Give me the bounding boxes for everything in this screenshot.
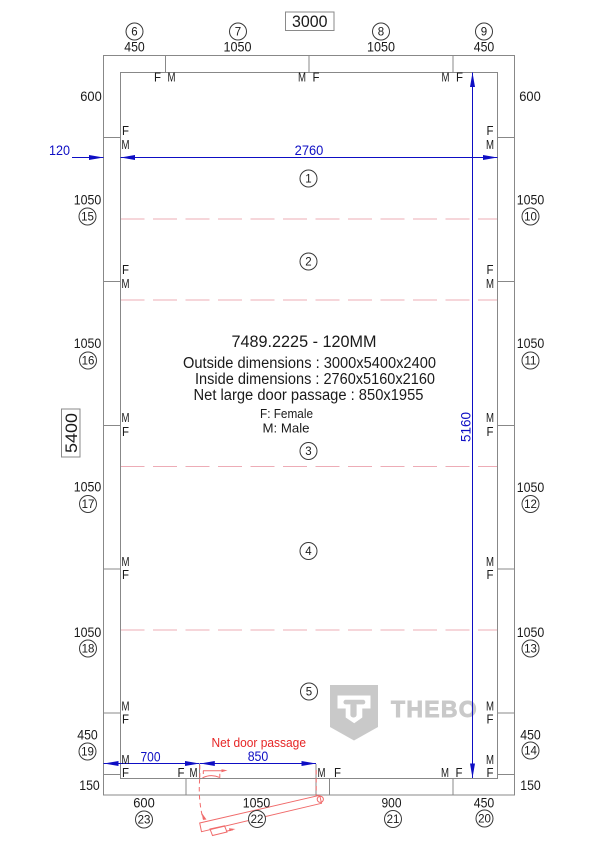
svg-text:1: 1 xyxy=(305,174,311,186)
svg-text:M: M xyxy=(122,138,130,152)
svg-text:22: 22 xyxy=(251,814,264,826)
svg-text:5: 5 xyxy=(306,687,312,699)
svg-text:450: 450 xyxy=(124,39,145,55)
svg-text:450: 450 xyxy=(474,795,495,811)
svg-text:F: F xyxy=(122,425,129,439)
svg-text:Outside dimensions : 3000x5400: Outside dimensions : 3000x5400x2400 xyxy=(183,355,436,372)
svg-text:M: M xyxy=(486,411,494,425)
svg-text:900: 900 xyxy=(382,795,402,811)
svg-text:F: F xyxy=(487,124,494,138)
svg-text:M: Male: M: Male xyxy=(263,421,310,436)
svg-text:5400: 5400 xyxy=(63,413,81,453)
svg-text:M: M xyxy=(486,753,494,767)
svg-text:F: F xyxy=(487,425,494,439)
svg-text:M: M xyxy=(442,71,450,85)
svg-text:Inside dimensions : 2760x5160x: Inside dimensions : 2760x5160x2160 xyxy=(195,371,435,388)
svg-text:10: 10 xyxy=(524,212,537,224)
svg-text:11: 11 xyxy=(525,356,537,368)
svg-text:21: 21 xyxy=(387,814,400,826)
svg-text:700: 700 xyxy=(141,749,161,765)
svg-text:600: 600 xyxy=(133,795,155,811)
svg-text:3000: 3000 xyxy=(292,13,328,31)
svg-text:F: F xyxy=(487,766,494,780)
svg-text:1050: 1050 xyxy=(243,795,271,811)
svg-text:M: M xyxy=(122,411,130,425)
svg-text:M: M xyxy=(486,277,494,291)
svg-text:M: M xyxy=(318,766,326,780)
svg-text:F: F xyxy=(154,71,161,85)
svg-text:450: 450 xyxy=(474,39,495,55)
svg-text:2760: 2760 xyxy=(295,142,324,158)
svg-text:F: F xyxy=(122,712,129,726)
svg-text:600: 600 xyxy=(519,88,541,104)
svg-text:1050: 1050 xyxy=(74,479,102,495)
svg-text:450: 450 xyxy=(520,727,541,743)
svg-text:1050: 1050 xyxy=(367,39,395,55)
svg-text:M: M xyxy=(298,71,306,85)
svg-text:1050: 1050 xyxy=(517,192,545,208)
svg-text:M: M xyxy=(122,753,130,767)
svg-text:M: M xyxy=(190,766,198,780)
svg-text:14: 14 xyxy=(524,746,537,758)
svg-text:M: M xyxy=(168,71,176,85)
svg-text:1050: 1050 xyxy=(517,335,545,351)
svg-text:850: 850 xyxy=(248,748,269,764)
svg-text:3: 3 xyxy=(305,446,311,458)
svg-text:7: 7 xyxy=(235,27,241,39)
svg-text:23: 23 xyxy=(138,815,151,827)
svg-text:1050: 1050 xyxy=(517,624,545,640)
svg-text:F: F xyxy=(122,263,129,277)
svg-text:F: F xyxy=(122,766,129,780)
svg-text:450: 450 xyxy=(77,727,98,743)
svg-text:1050: 1050 xyxy=(224,39,252,55)
svg-text:13: 13 xyxy=(524,644,537,656)
svg-text:18: 18 xyxy=(82,644,95,656)
svg-text:F: F xyxy=(487,712,494,726)
svg-text:15: 15 xyxy=(81,212,94,224)
svg-text:M: M xyxy=(486,138,494,152)
svg-text:4: 4 xyxy=(305,546,312,558)
svg-text:600: 600 xyxy=(80,88,102,104)
svg-text:1050: 1050 xyxy=(74,192,102,208)
svg-text:120: 120 xyxy=(49,142,70,158)
svg-text:F: F xyxy=(456,766,463,780)
svg-text:17: 17 xyxy=(82,499,95,511)
svg-text:16: 16 xyxy=(82,356,95,368)
svg-text:F: F xyxy=(487,263,494,277)
svg-text:1050: 1050 xyxy=(74,335,102,351)
svg-text:20: 20 xyxy=(478,814,491,826)
svg-text:M: M xyxy=(441,766,449,780)
svg-text:150: 150 xyxy=(79,777,100,793)
svg-text:F: Female: F: Female xyxy=(260,406,313,421)
svg-text:M: M xyxy=(486,555,494,569)
svg-text:Net door passage: Net door passage xyxy=(212,736,307,750)
svg-text:150: 150 xyxy=(520,777,541,793)
svg-text:8: 8 xyxy=(378,27,384,39)
svg-text:F: F xyxy=(122,124,129,138)
svg-text:5160: 5160 xyxy=(458,412,474,442)
svg-text:12: 12 xyxy=(524,499,537,511)
svg-text:F: F xyxy=(122,568,129,582)
svg-text:F: F xyxy=(313,71,320,85)
svg-text:F: F xyxy=(487,568,494,582)
svg-text:M: M xyxy=(122,555,130,569)
svg-text:1050: 1050 xyxy=(517,479,545,495)
svg-text:F: F xyxy=(456,71,463,85)
svg-text:7489.2225 - 120MM: 7489.2225 - 120MM xyxy=(232,332,377,351)
svg-text:6: 6 xyxy=(131,27,137,39)
svg-text:M: M xyxy=(122,699,130,713)
svg-text:THEBO: THEBO xyxy=(391,696,478,722)
svg-text:2: 2 xyxy=(305,257,311,269)
svg-text:M: M xyxy=(486,699,494,713)
svg-text:M: M xyxy=(122,277,130,291)
svg-text:19: 19 xyxy=(81,747,94,759)
svg-text:9: 9 xyxy=(481,27,487,39)
svg-text:F: F xyxy=(334,766,341,780)
svg-text:Net large door passage : 850x1: Net large door passage : 850x1955 xyxy=(194,387,424,404)
svg-text:1050: 1050 xyxy=(74,624,102,640)
svg-text:F: F xyxy=(178,766,185,780)
